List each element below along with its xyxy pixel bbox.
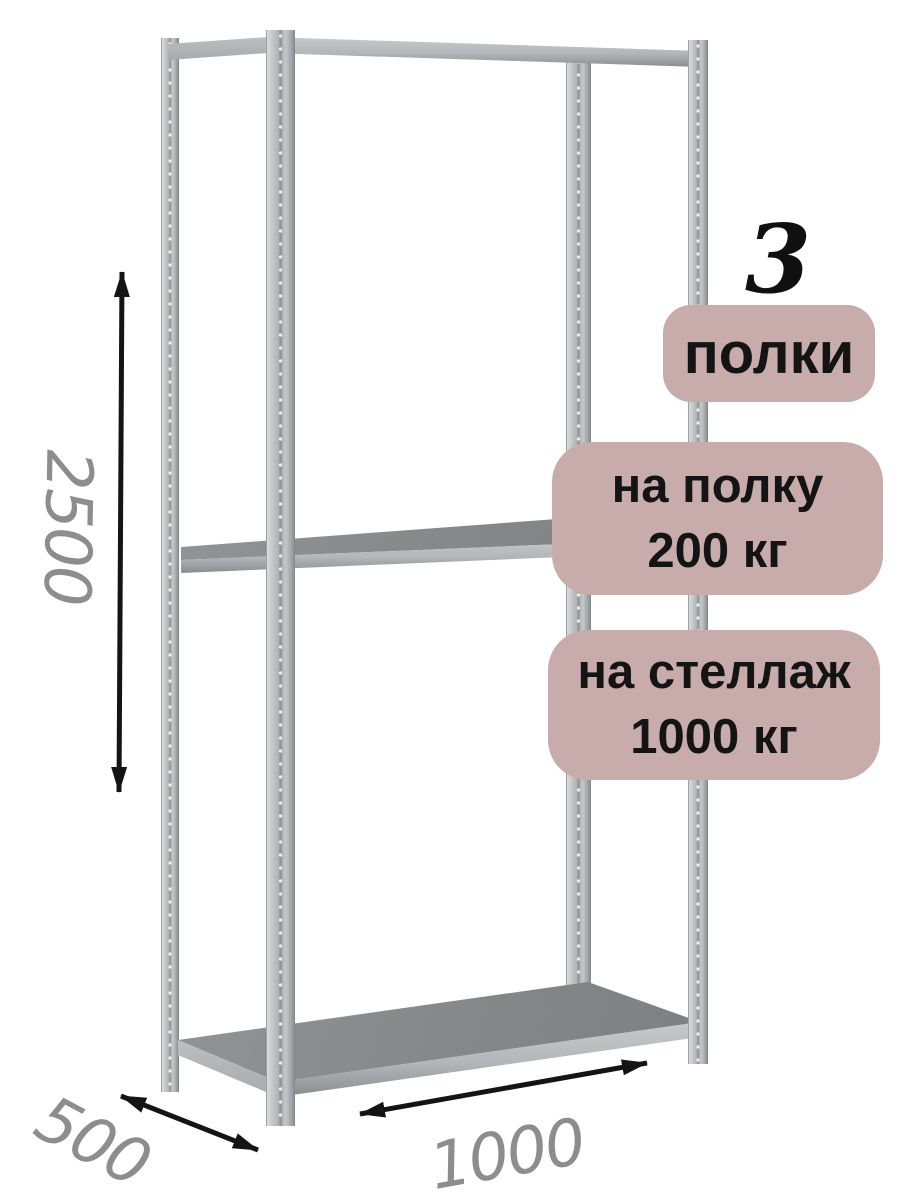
- shelves-badge-label: полки: [684, 320, 855, 387]
- product-image-shelving-rack: 2500 500 1000 3 полки на полку 200 кг на…: [0, 0, 900, 1200]
- shelf-load-badge: на полку 200 кг: [552, 442, 883, 595]
- rack-load-badge: на стеллаж 1000 кг: [548, 630, 880, 780]
- shelves-badge: полки: [663, 305, 875, 402]
- width-dimension-arrow-icon: [360, 1063, 647, 1114]
- height-dimension-label: 2500: [30, 426, 103, 627]
- rack-load-line1: на стеллаж: [577, 640, 850, 705]
- shelves-count-number: 3: [728, 212, 828, 312]
- shelf-load-line2: 200 кг: [647, 519, 787, 584]
- height-dimension-arrow-icon: [119, 272, 122, 792]
- dimension-arrows-layer: [0, 0, 900, 1200]
- shelf-load-line1: на полку: [612, 454, 824, 519]
- rack-load-line2: 1000 кг: [630, 705, 798, 770]
